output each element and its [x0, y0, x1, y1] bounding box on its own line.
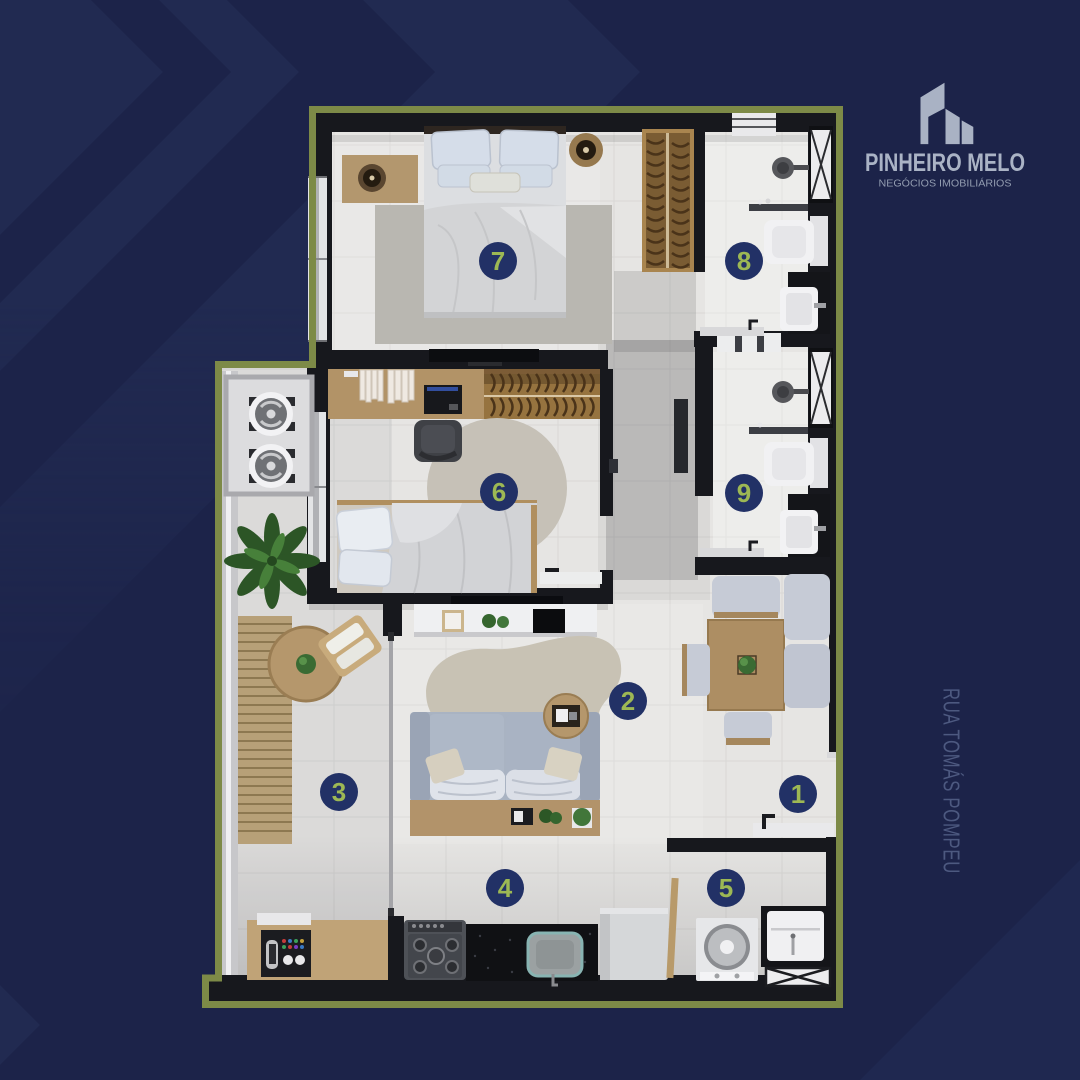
svg-text:8: 8 — [737, 246, 751, 276]
svg-text:5: 5 — [719, 873, 733, 903]
svg-text:4: 4 — [498, 873, 513, 903]
svg-text:9: 9 — [737, 478, 751, 508]
svg-text:3: 3 — [332, 777, 346, 807]
svg-text:2: 2 — [621, 686, 635, 716]
svg-text:6: 6 — [492, 477, 506, 507]
svg-text:1: 1 — [791, 779, 805, 809]
svg-text:RUA TOMÁS POMPEU: RUA TOMÁS POMPEU — [939, 688, 965, 874]
svg-text:7: 7 — [491, 246, 505, 276]
svg-text:PINHEIRO MELO: PINHEIRO MELO — [865, 149, 1025, 177]
svg-text:NEGÓCIOS IMOBILIÁRIOS: NEGÓCIOS IMOBILIÁRIOS — [879, 177, 1012, 190]
